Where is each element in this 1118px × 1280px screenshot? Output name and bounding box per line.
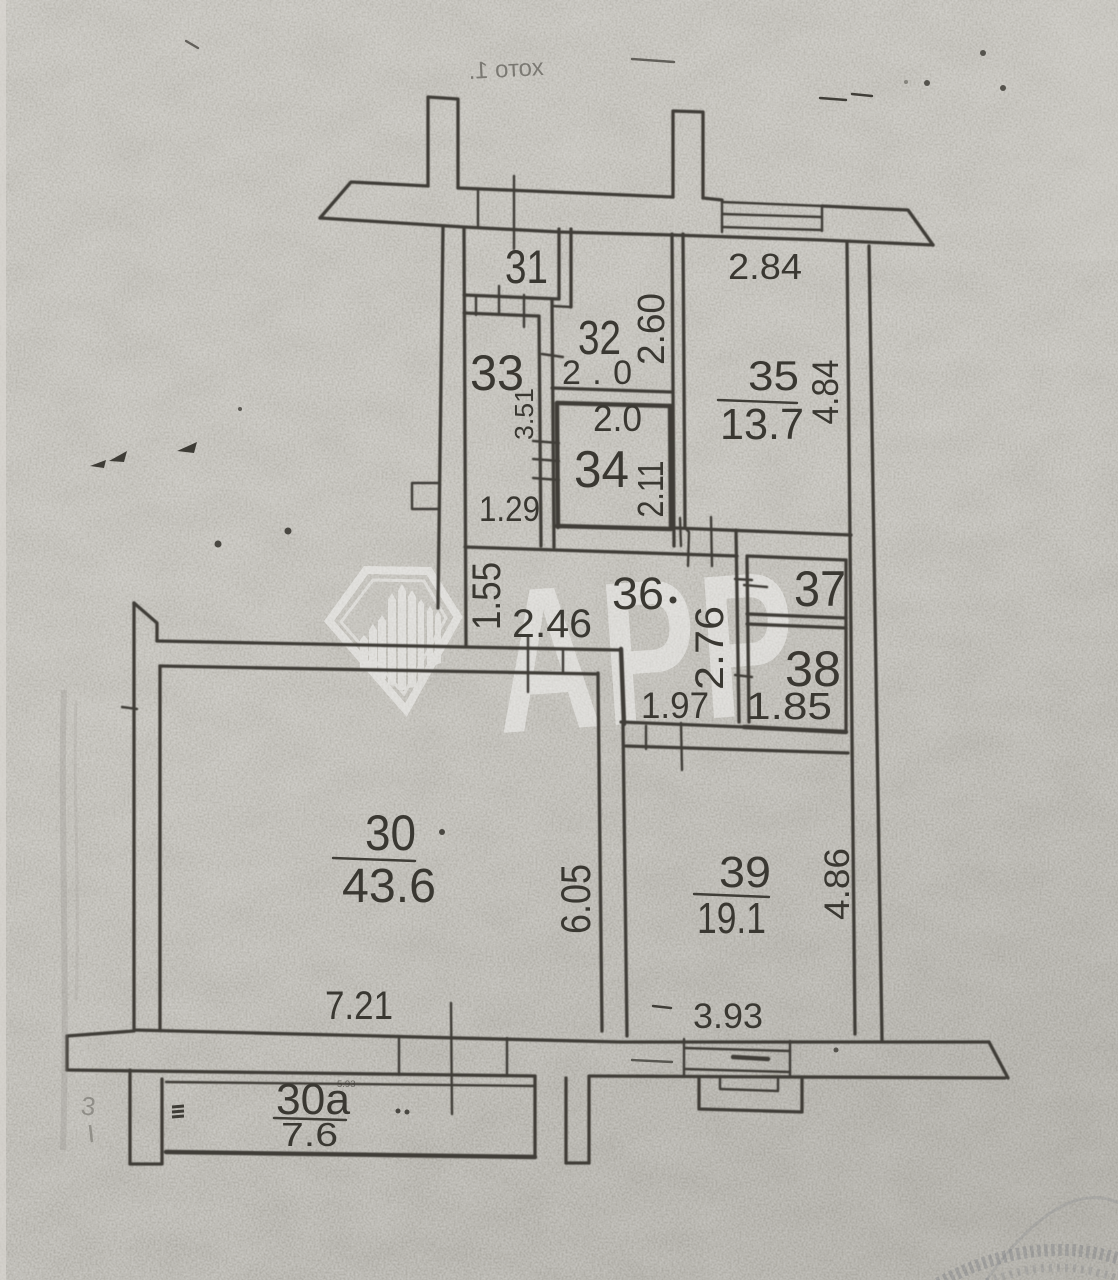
svg-text:37: 37 (794, 561, 846, 617)
svg-text:2.0: 2.0 (593, 398, 642, 439)
svg-text:19.1: 19.1 (697, 894, 766, 943)
svg-text:13.7: 13.7 (720, 400, 804, 449)
svg-text:43.6: 43.6 (342, 860, 436, 913)
svg-text:3.51: 3.51 (509, 388, 539, 440)
svg-text:5.93: 5.93 (337, 1079, 356, 1090)
svg-text:39: 39 (719, 848, 771, 897)
svg-text:4.86: 4.86 (818, 848, 857, 920)
svg-text:6.05: 6.05 (552, 864, 599, 934)
svg-text:7.21: 7.21 (325, 984, 393, 1028)
svg-text:34: 34 (574, 441, 629, 499)
svg-text:2.0: 2.0 (562, 354, 632, 392)
svg-text:7.6: 7.6 (281, 1116, 338, 1153)
svg-text:хото 1.: хото 1. (468, 54, 545, 85)
svg-text:36: 36 (612, 568, 664, 619)
svg-text:4.84: 4.84 (805, 360, 846, 425)
svg-text:2.60: 2.60 (631, 293, 673, 365)
svg-text:2.46: 2.46 (512, 602, 592, 646)
svg-text:3.93: 3.93 (693, 997, 763, 1036)
svg-text:1.29: 1.29 (479, 490, 540, 529)
svg-text:2.84: 2.84 (728, 246, 802, 287)
svg-text:35: 35 (748, 352, 799, 399)
svg-text:30: 30 (365, 805, 416, 861)
svg-text:1.97: 1.97 (641, 685, 709, 726)
svg-text:2.76: 2.76 (688, 606, 732, 690)
svg-text:2.11: 2.11 (630, 461, 671, 518)
svg-text:31: 31 (505, 240, 548, 293)
svg-text:1.85: 1.85 (746, 686, 832, 728)
svg-text:1.55: 1.55 (465, 562, 509, 630)
